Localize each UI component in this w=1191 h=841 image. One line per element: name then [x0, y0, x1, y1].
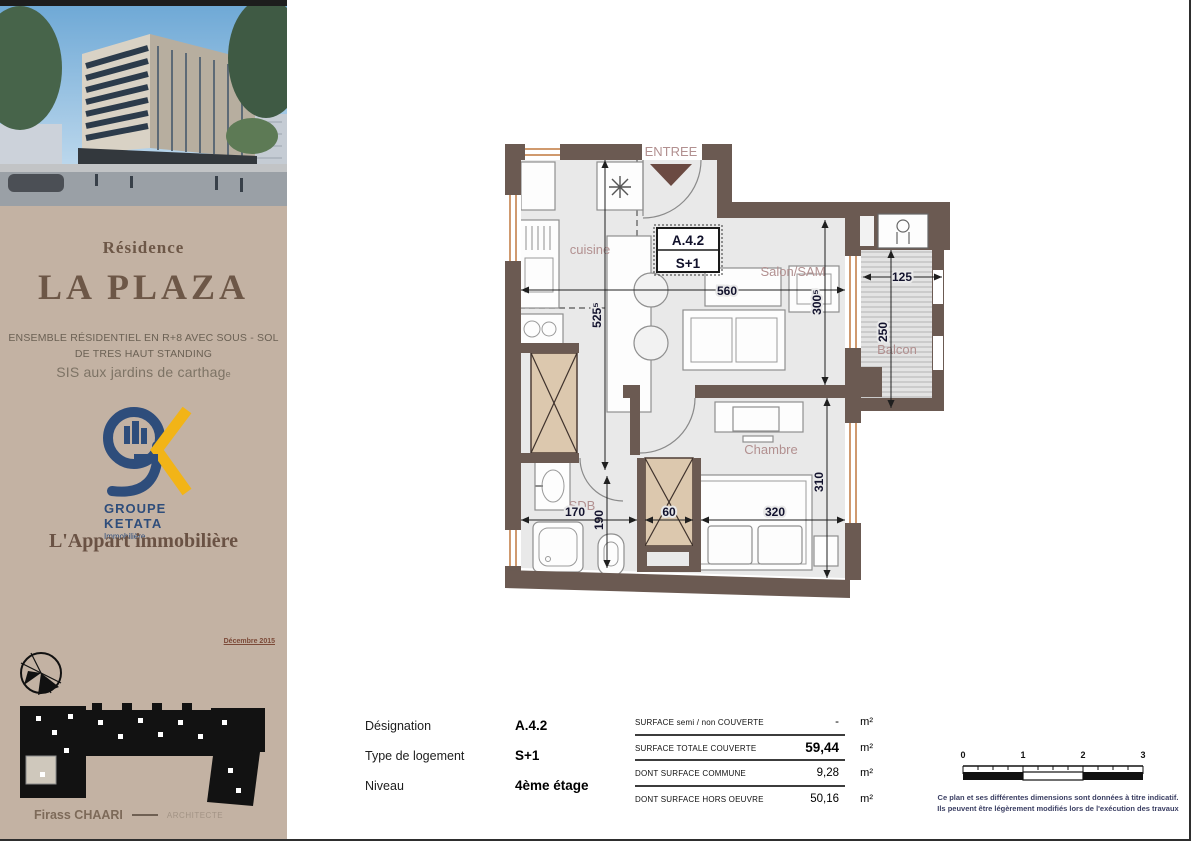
surface-row: SURFACE TOTALE COUVERTE 59,44 m²: [635, 736, 875, 762]
scale-tick-3: 3: [1140, 750, 1145, 760]
architect-title: ARCHITECTE: [167, 811, 223, 820]
info-value: A.4.2: [515, 718, 547, 733]
logo-ketata-line: KETATA: [104, 516, 163, 531]
info-label: Niveau: [365, 779, 515, 793]
dim-125: 125: [892, 270, 912, 284]
boiler-star-symbol: [609, 176, 631, 198]
sofa: [683, 310, 785, 370]
cuisine-label: cuisine: [570, 242, 610, 257]
dim-320: 320: [765, 505, 785, 519]
surface-label: DONT SURFACE HORS OEUVRE: [635, 795, 764, 804]
scale-tick-1: 1: [1020, 750, 1025, 760]
surface-unit: m²: [860, 742, 873, 754]
main-area: ENTREE A.4.2 S+1 cuisine Salon/SAM Chamb…: [287, 0, 1191, 841]
unit-type: S+1: [676, 256, 701, 271]
date-label: Décembre 2015: [224, 638, 275, 645]
toilet: [598, 534, 624, 576]
surface-label: SURFACE TOTALE COUVERTE: [635, 744, 756, 753]
info-value: S+1: [515, 748, 539, 763]
surfaces-table: SURFACE semi / non COUVERTE - m² SURFACE…: [635, 710, 875, 812]
gk-logo-icon: [108, 410, 187, 492]
architect-divider: [132, 814, 158, 816]
surface-row: DONT SURFACE HORS OEUVRE 50,16 m²: [635, 787, 875, 813]
note-line2: Ils peuvent être légèrement modifiés lor…: [905, 803, 1191, 814]
unit-code-box: A.4.2 S+1: [654, 225, 722, 275]
salon-label: Salon/SAM: [760, 264, 825, 279]
surface-value: -: [835, 716, 839, 728]
dim-560: 560: [717, 284, 737, 298]
note-line1: Ce plan et ses différentes dimensions so…: [905, 792, 1191, 803]
info-row-designation: Désignation A.4.2: [365, 718, 645, 748]
info-value: 4ème étage: [515, 778, 589, 793]
closet-hatched: [645, 458, 693, 546]
surface-row: DONT SURFACE COMMUNE 9,28 m²: [635, 761, 875, 787]
unit-info-table: Désignation A.4.2 Type de logement S+1 N…: [365, 718, 645, 808]
scale-tick-2: 2: [1080, 750, 1085, 760]
disclaimer-note: Ce plan et ses différentes dimensions so…: [905, 792, 1191, 814]
surface-value: 59,44: [805, 740, 839, 755]
info-label: Type de logement: [365, 749, 515, 763]
residence-label: Résidence: [0, 238, 287, 258]
subtitle-line1: ENSEMBLE RÉSIDENTIEL EN R+8 AVEC SOUS - …: [0, 330, 287, 346]
groupe-ketata-logo: GROUPE KETATA Immobilière: [84, 398, 210, 548]
surface-unit: m²: [860, 793, 873, 805]
unit-code: A.4.2: [672, 233, 704, 248]
entry-label: ENTREE: [645, 144, 698, 159]
brand-block: Résidence LA PLAZA: [0, 238, 287, 308]
wardrobe-hatched: [531, 353, 577, 453]
architect-credit: Firass CHAARI ARCHITECTE: [34, 808, 223, 822]
sidebar: Résidence LA PLAZA ENSEMBLE RÉSIDENTIEL …: [0, 0, 287, 841]
logo-group-line: GROUPE: [104, 501, 166, 516]
top-dark-strip: [0, 0, 287, 6]
dim-60: 60: [662, 505, 676, 519]
surface-label: SURFACE semi / non COUVERTE: [635, 718, 764, 727]
building-render-art: [0, 6, 287, 206]
nightstand: [814, 536, 838, 566]
site-plan-thumbnail: [6, 696, 280, 813]
surface-value: 9,28: [817, 767, 839, 779]
subtitle-line2: DE TRES HAUT STANDING: [0, 346, 287, 362]
building-render-photo: [0, 6, 287, 206]
surface-row: SURFACE semi / non COUVERTE - m²: [635, 710, 875, 736]
scale-bar: 0 1 2 3: [955, 748, 1155, 789]
surface-unit: m²: [860, 767, 873, 779]
info-row-niveau: Niveau 4ème étage: [365, 778, 645, 808]
agency-name: L'Appart immobilière: [0, 530, 287, 553]
architect-name: Firass CHAARI: [34, 808, 123, 822]
floor-plan: ENTREE A.4.2 S+1 cuisine Salon/SAM Chamb…: [505, 140, 950, 605]
subtitle-line3: SIS aux jardins de carthage: [0, 364, 287, 382]
project-subtitle: ENSEMBLE RÉSIDENTIEL EN R+8 AVEC SOUS - …: [0, 330, 287, 382]
dim-310: 310: [812, 472, 826, 492]
dim-525: 525⁵: [590, 302, 604, 328]
dim-250: 250: [876, 322, 890, 342]
surface-value: 50,16: [810, 793, 839, 805]
info-row-type: Type de logement S+1: [365, 748, 645, 778]
surface-label: DONT SURFACE COMMUNE: [635, 769, 746, 778]
closet-base-inset: [647, 552, 689, 566]
balcony-basin-fixture: [878, 214, 928, 248]
scale-tick-0: 0: [960, 750, 965, 760]
shower: [533, 522, 583, 572]
chambre-label: Chambre: [744, 442, 797, 457]
pillow: [708, 526, 752, 564]
surface-unit: m²: [860, 716, 873, 728]
dim-300: 300⁵: [810, 289, 824, 315]
pillow: [758, 526, 802, 564]
project-title: LA PLAZA: [0, 266, 287, 308]
plan-sheet-page: Résidence LA PLAZA ENSEMBLE RÉSIDENTIEL …: [0, 0, 1191, 841]
info-label: Désignation: [365, 719, 515, 733]
balcon-label: Balcon: [877, 342, 917, 357]
dim-170: 170: [565, 505, 585, 519]
